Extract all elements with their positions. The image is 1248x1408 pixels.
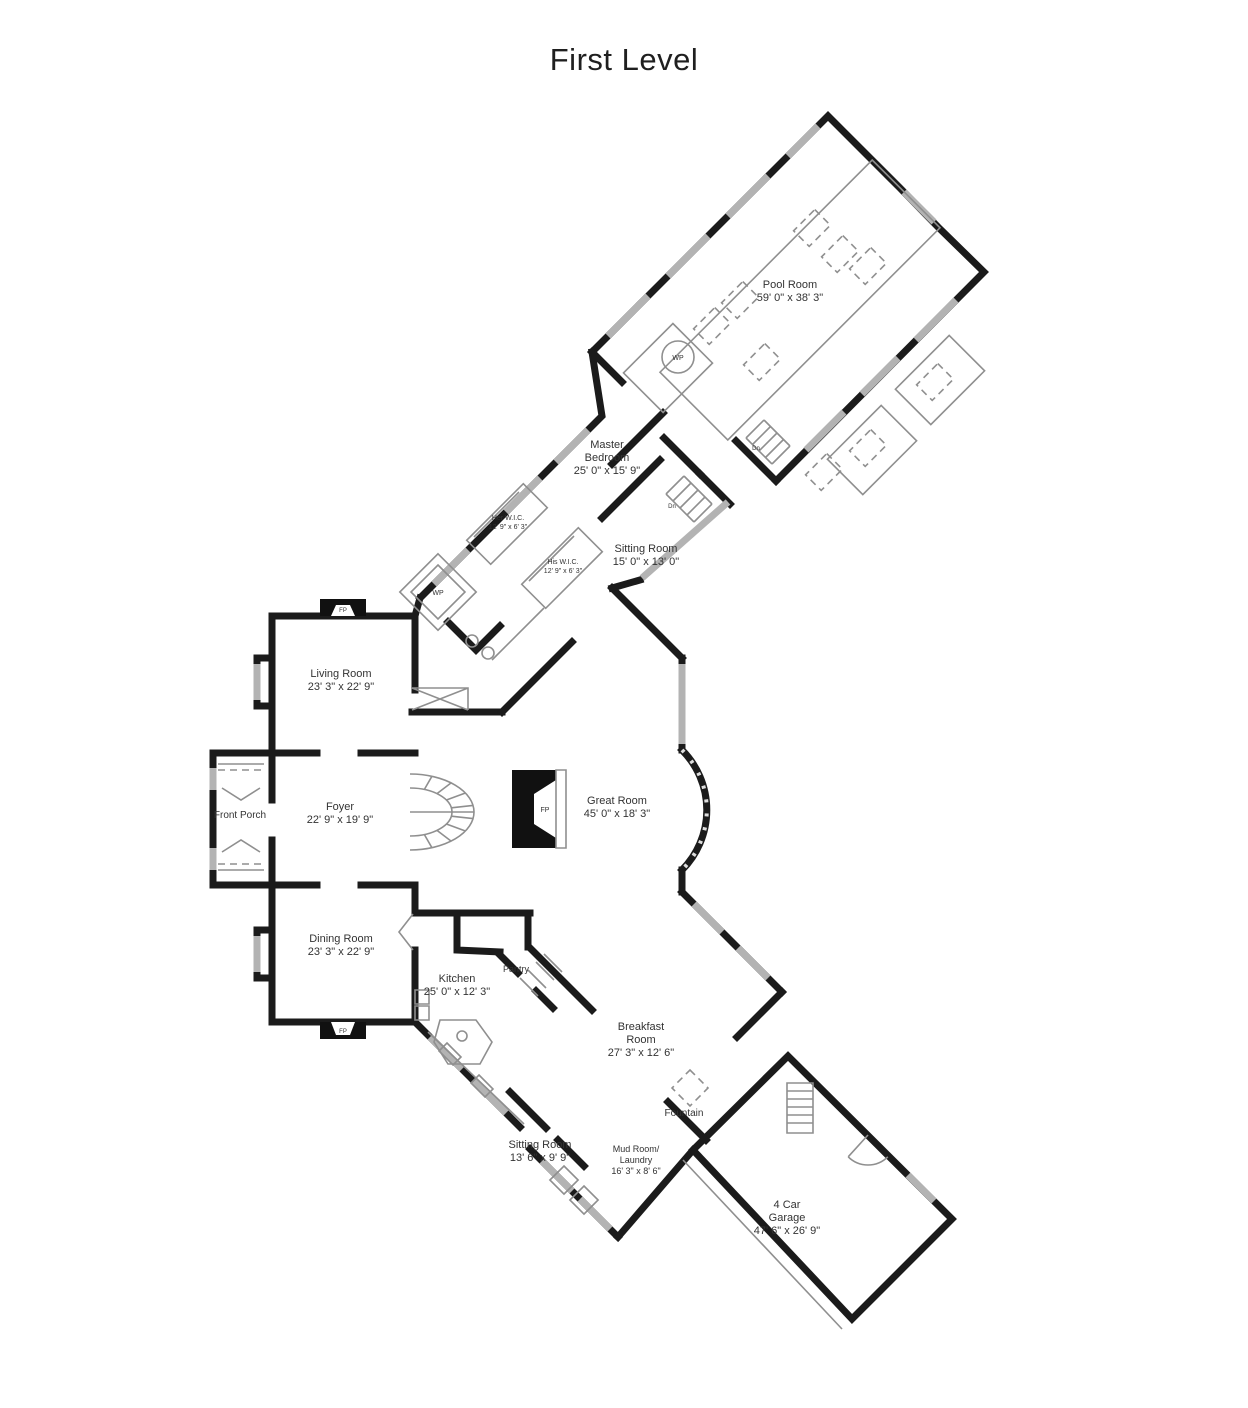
fixtures-and-fittings bbox=[218, 160, 985, 1329]
room-label-dining-room: Dining Room23' 3" x 22' 9" bbox=[308, 933, 375, 958]
floor-plan-page: First Level Pool Room59' 0" x 38' 3"Mast… bbox=[0, 0, 1248, 1408]
fixture-label-whirlpool-pool: WP bbox=[672, 355, 684, 362]
room-label-his-wic: His W.I.C.12' 9" x 6' 3" bbox=[544, 559, 583, 575]
stair-label-dn-hall: Dn bbox=[668, 504, 676, 510]
furniture-dashed bbox=[218, 210, 953, 1106]
fixture-label-whirlpool-bath: WP bbox=[432, 590, 444, 597]
room-label-fountain: Fountain bbox=[665, 1108, 704, 1119]
room-label-kitchen: Kitchen25' 0" x 12' 3" bbox=[424, 973, 491, 998]
room-label-living-room: Living Room23' 3" x 22' 9" bbox=[308, 668, 375, 693]
stair-label-dn-pool: Dn bbox=[752, 446, 760, 452]
room-label-mud-room: Mud Room/Laundry16' 3" x 8' 6" bbox=[611, 1144, 660, 1176]
room-label-sitting-room-rear: Sitting Room13' 6" x 9' 9" bbox=[509, 1139, 572, 1164]
fixture-label-fireplace-great: FP bbox=[541, 807, 550, 814]
room-label-front-porch: Front Porch bbox=[214, 810, 266, 821]
fixture-label-fireplace-dining: FP bbox=[339, 1029, 347, 1035]
room-label-pool-room: Pool Room59' 0" x 38' 3" bbox=[757, 279, 824, 304]
room-label-great-room: Great Room45' 0" x 18' 3" bbox=[584, 795, 651, 820]
room-label-sitting-room-master: Sitting Room15' 0" x 13' 0" bbox=[613, 543, 680, 568]
room-label-foyer: Foyer22' 9" x 19' 9" bbox=[307, 801, 374, 826]
room-label-garage: 4 CarGarage47' 6" x 26' 9" bbox=[754, 1199, 821, 1237]
floor-plan-canvas: Pool Room59' 0" x 38' 3"MasterBedroom25'… bbox=[0, 0, 1248, 1408]
exterior-and-interior-walls bbox=[213, 116, 984, 1319]
room-label-breakfast-room: BreakfastRoom27' 3" x 12' 6" bbox=[608, 1021, 675, 1059]
room-label-pantry: Pantry bbox=[503, 964, 530, 974]
fixture-label-fireplace-living: FP bbox=[339, 608, 347, 614]
